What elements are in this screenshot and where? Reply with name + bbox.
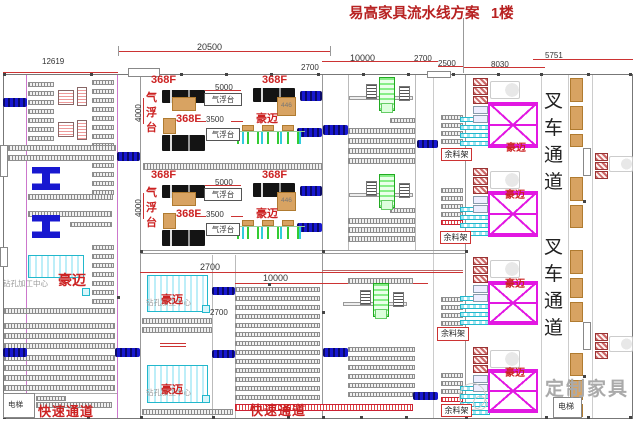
pallet-stack (473, 78, 488, 86)
storage-rack (92, 263, 114, 268)
tan-pallet (172, 97, 196, 111)
edge-bander-line (237, 226, 305, 239)
label-scrap-rack: 余料架 (440, 231, 471, 244)
storage-rack (441, 373, 463, 378)
dim-2700-bottom: 2700 (200, 263, 220, 272)
blue-machine (323, 125, 348, 135)
storage-rack (142, 327, 212, 333)
saw-support-box (399, 183, 410, 198)
wall-or-dimension-line (231, 216, 243, 217)
storage-rack (441, 196, 463, 201)
forklift-outline (609, 336, 633, 352)
small-label-box (58, 122, 74, 137)
pallet-stack (595, 162, 608, 170)
storage-rack (28, 136, 54, 141)
storage-rack (235, 314, 320, 319)
wall-or-dimension-line (415, 75, 416, 251)
label-368f: 368F (262, 170, 287, 182)
label-haomai: 豪迈 (505, 369, 525, 380)
storage-rack (28, 82, 54, 87)
pallet-stack (473, 275, 488, 283)
grid-node (180, 73, 183, 76)
wall-or-dimension-line (592, 75, 593, 418)
wall-or-dimension-line (160, 346, 186, 347)
label-haomai: 豪迈 (256, 209, 278, 221)
label-elevator: 电梯 (558, 403, 574, 411)
cyan-conveyor-bar (460, 312, 490, 317)
label-qifutai-box: 气浮台 (204, 93, 242, 106)
cyan-conveyor-bar (460, 133, 490, 138)
haomai-edgebander-machine (488, 102, 538, 148)
storage-rack (4, 375, 115, 381)
pallet-stack-gray (473, 285, 488, 293)
storage-rack (28, 100, 54, 105)
storage-rack (235, 332, 320, 337)
grid-node (117, 296, 120, 299)
label-scrap-rack: 余料架 (437, 327, 469, 341)
storage-rack (235, 287, 320, 292)
tan-wall-segment (570, 177, 583, 201)
floor-label: 1楼 (491, 2, 514, 23)
storage-rack (4, 385, 115, 391)
cyan-unit (202, 395, 210, 403)
grid-node (90, 73, 93, 76)
label-368f: 368F (262, 75, 287, 87)
tan-wall-segment (570, 302, 583, 322)
wall-or-dimension-line (322, 270, 463, 271)
dim-2500: 2500 (438, 60, 456, 68)
dim-20500: 20500 (197, 43, 222, 52)
forklift-outline (609, 156, 633, 172)
tan-pallet (172, 192, 196, 206)
storage-rack (235, 341, 320, 346)
label-scrap-rack: 余料架 (441, 404, 472, 417)
storage-rack (235, 359, 320, 364)
dim-2700-right: 2700 (301, 64, 319, 72)
blue-cross-machine (32, 167, 60, 190)
label-forklift-aisle: 叉车通道 (544, 234, 566, 342)
wall-opening (0, 247, 8, 267)
label-elevator: 电梯 (8, 401, 23, 409)
storage-rack (348, 236, 415, 242)
storage-rack (235, 323, 320, 328)
forklift-outline (490, 260, 520, 278)
label-qifutai-box: 气浮台 (206, 223, 240, 236)
wall-or-dimension-line (140, 75, 141, 418)
blue-machine (300, 186, 322, 196)
watermark-text: 定制家具 (545, 380, 629, 400)
storage-rack (8, 155, 114, 161)
storage-rack (348, 128, 415, 134)
wall-or-dimension-line (632, 74, 633, 419)
wall-or-dimension-line (433, 75, 434, 418)
cyan-conveyor-bar (460, 223, 490, 228)
storage-rack (348, 374, 415, 379)
storage-rack (92, 299, 114, 304)
storage-rack (235, 350, 320, 355)
storage-rack (92, 290, 114, 295)
grid-node (452, 73, 455, 76)
storage-rack (235, 296, 320, 301)
cyan-conveyor-bar (460, 320, 490, 325)
wall-or-dimension-line (140, 250, 465, 251)
storage-rack (4, 323, 115, 329)
saw-support-box (366, 84, 377, 99)
grid-node (583, 375, 586, 378)
pallet-stack-gray (473, 106, 488, 114)
wall-or-dimension-line (140, 253, 465, 254)
grid-node (405, 416, 408, 419)
forklift-outline (490, 81, 520, 99)
wall-or-dimension-line (140, 272, 463, 273)
storage-rack (348, 218, 415, 224)
wall-or-dimension-line (212, 255, 213, 418)
dim-12619: 12619 (42, 58, 64, 66)
pallet-stack-gray (473, 115, 488, 123)
storage-rack (36, 396, 66, 401)
grid-node (360, 416, 363, 419)
panel-saw-outfeed (381, 200, 393, 210)
grid-node (540, 73, 543, 76)
storage-rack (4, 308, 115, 314)
blue-machine (300, 91, 322, 101)
page-title: 易高家具流水线方案 (349, 2, 480, 23)
wall-opening (583, 322, 591, 350)
wall-or-dimension-line (568, 75, 569, 418)
dim-5000-b: 5000 (215, 179, 233, 187)
grid-node (587, 73, 590, 76)
saw-support-box (366, 181, 377, 196)
label-qifutai-vertical: 气浮台 (146, 186, 159, 231)
grid-node (140, 250, 143, 253)
label-haomai: 豪迈 (506, 144, 526, 155)
grid-node (225, 73, 228, 76)
storage-rack (441, 188, 463, 193)
dim-2700-top: 2700 (414, 55, 432, 63)
tan-pallet (163, 213, 176, 229)
storage-rack (70, 222, 112, 227)
pallet-stack (595, 342, 608, 350)
grid-node (629, 73, 632, 76)
storage-rack (8, 145, 116, 151)
tan-wall-segment (570, 278, 583, 298)
pallet-stack-gray (473, 196, 488, 204)
dim-10000-top: 10000 (350, 54, 375, 63)
storage-rack (142, 318, 212, 324)
small-label-box (77, 87, 87, 106)
grid-node (465, 250, 468, 253)
tan-wall-segment (570, 250, 583, 274)
label-haomai: 豪迈 (161, 385, 183, 397)
grid-node (587, 416, 590, 419)
dim-3500-b: 3500 (206, 211, 224, 219)
storage-rack (28, 109, 54, 114)
storage-rack (348, 148, 415, 154)
wall-opening (427, 71, 451, 78)
storage-rack (235, 305, 320, 310)
dim-446-b: 446 (281, 198, 292, 205)
storage-rack (4, 333, 115, 339)
dim-10000-bottom: 10000 (263, 274, 288, 283)
label-drill-center: 钻孔加工中心 (3, 280, 48, 288)
grid-node (3, 73, 6, 76)
storage-rack (92, 134, 114, 139)
storage-rack (390, 118, 415, 123)
tan-wall-segment (570, 106, 583, 130)
cyan-conveyor-bar (460, 304, 490, 309)
storage-rack (28, 127, 54, 132)
storage-rack (28, 194, 113, 200)
wall-or-dimension-line (118, 46, 119, 56)
wall-opening (583, 148, 591, 176)
pallet-stack (595, 171, 608, 179)
grid-node (322, 250, 325, 253)
storage-rack (235, 386, 320, 391)
wall-or-dimension-line (3, 418, 633, 419)
storage-rack (92, 107, 114, 112)
pallet-stack (595, 351, 608, 359)
wall-opening (0, 145, 8, 177)
grid-node (268, 283, 271, 286)
label-forklift-aisle: 叉车通道 (544, 88, 566, 196)
pallet-stack (473, 347, 488, 355)
storage-rack (92, 181, 114, 186)
blue-machine (417, 140, 438, 148)
wall-or-dimension-line (160, 343, 186, 344)
storage-rack (348, 392, 415, 397)
label-haomai: 豪迈 (161, 295, 183, 307)
storage-rack (92, 281, 114, 286)
dim-4000-b: 4000 (135, 199, 143, 217)
dim-446-a: 446 (281, 103, 292, 110)
saw-support-box (393, 292, 404, 307)
dim-2700-vmid: 2700 (210, 309, 228, 317)
saw-support-box (360, 290, 371, 305)
label-368f: 368F (151, 170, 176, 182)
dim-5000-a: 5000 (215, 84, 233, 92)
wall-or-dimension-line (117, 75, 118, 418)
grid-node (322, 416, 325, 419)
storage-rack (235, 377, 320, 382)
storage-rack (390, 208, 415, 213)
label-haomai-large: 豪迈 (58, 273, 86, 288)
blue-machine (413, 392, 438, 400)
pallet-stack-gray (473, 205, 488, 213)
blue-machine (212, 287, 235, 295)
blue-machine (117, 152, 140, 161)
wall-or-dimension-line (541, 75, 542, 418)
storage-rack (348, 347, 415, 352)
pallet-stack (473, 168, 488, 176)
label-fast-lane: 快速通道 (250, 404, 306, 418)
pallet-stack (595, 153, 608, 161)
dim-8030: 8030 (491, 61, 509, 69)
grid-node (629, 416, 632, 419)
pallet-stack (473, 266, 488, 274)
pallet-stack (473, 96, 488, 104)
storage-rack (92, 80, 114, 85)
label-qifutai-vertical: 气浮台 (146, 91, 159, 136)
grid-node (545, 416, 548, 419)
pallet-stack (473, 186, 488, 194)
storage-rack (92, 254, 114, 259)
cyan-unit (82, 288, 90, 296)
storage-rack (92, 172, 114, 177)
small-label-box (77, 120, 87, 140)
wall-or-dimension-line (231, 121, 243, 122)
cyan-conveyor-bar (460, 125, 490, 130)
pallet-stack-gray (473, 375, 488, 383)
dim-3500-a: 3500 (206, 116, 224, 124)
blue-machine (3, 98, 27, 107)
label-368f: 368F (151, 75, 176, 87)
storage-rack (28, 91, 54, 96)
grid-node (362, 73, 365, 76)
label-qifutai-box: 气浮台 (204, 188, 242, 201)
saw-support-box (399, 86, 410, 101)
forklift-outline (490, 350, 520, 368)
tan-wall-segment (570, 78, 583, 102)
storage-rack (348, 365, 415, 370)
label-scrap-rack: 余料架 (441, 148, 472, 161)
blue-machine (212, 350, 235, 358)
wall-or-dimension-line (330, 46, 331, 56)
storage-rack (92, 272, 114, 277)
storage-rack (348, 383, 415, 388)
tan-wall-segment (570, 353, 583, 376)
wall-or-dimension-line (463, 18, 464, 73)
cyan-unit (202, 305, 210, 313)
storage-rack (348, 227, 415, 233)
small-label-box (58, 90, 74, 105)
storage-rack (348, 158, 415, 164)
cnc-368f-machine (162, 230, 205, 246)
label-haomai: 豪迈 (505, 191, 525, 202)
grid-node (407, 73, 410, 76)
edge-bander-line (237, 131, 305, 144)
storage-rack (348, 138, 415, 144)
forklift-outline (490, 171, 520, 189)
tan-pallet (163, 118, 176, 134)
tan-wall-segment (570, 134, 583, 147)
label-haomai: 豪迈 (505, 280, 525, 291)
storage-rack (28, 118, 54, 123)
blue-cross-machine (32, 215, 60, 238)
storage-rack (235, 368, 320, 373)
blue-machine (3, 348, 27, 357)
grid-node (212, 416, 215, 419)
cnc-368f-machine (162, 135, 205, 151)
wall-or-dimension-line (118, 51, 330, 52)
storage-rack (235, 395, 320, 400)
grid-node (140, 416, 143, 419)
storage-rack (92, 116, 114, 121)
dim-5751: 5751 (545, 52, 563, 60)
storage-rack (92, 245, 114, 250)
pallet-stack (473, 177, 488, 185)
storage-rack (92, 125, 114, 130)
pallet-stack (595, 333, 608, 341)
grid-node (317, 73, 320, 76)
blue-machine (115, 348, 140, 357)
grid-node (583, 200, 586, 203)
blue-machine (323, 348, 348, 357)
label-fast-lane: 快速通道 (38, 405, 94, 419)
cyan-conveyor-bar (460, 215, 490, 220)
watermark-logo (473, 396, 487, 410)
dim-4000-a: 4000 (135, 104, 143, 122)
pallet-stack (473, 356, 488, 364)
cyan-conveyor-bar (460, 141, 490, 146)
wall-or-dimension-line (3, 72, 118, 73)
pallet-stack (473, 257, 488, 265)
storage-rack (92, 163, 114, 168)
label-368f: 368F (176, 209, 201, 221)
storage-rack (92, 89, 114, 94)
floorplan-canvas: 易高家具流水线方案 1楼 205001261910000270025008030… (0, 0, 640, 428)
label-368f: 368F (176, 114, 201, 126)
pallet-stack (473, 87, 488, 95)
tan-wall-segment (570, 205, 583, 228)
pallet-stack-gray (473, 294, 488, 302)
grid-node (322, 311, 325, 314)
grid-node (497, 73, 500, 76)
panel-saw-outfeed (381, 103, 393, 113)
pallet-stack (473, 365, 488, 373)
storage-rack (348, 356, 415, 361)
label-haomai: 豪迈 (256, 114, 278, 126)
panel-saw-outfeed (375, 309, 387, 319)
label-qifutai-box: 气浮台 (206, 128, 240, 141)
storage-rack (92, 98, 114, 103)
storage-rack (4, 365, 115, 371)
storage-rack (142, 409, 233, 415)
